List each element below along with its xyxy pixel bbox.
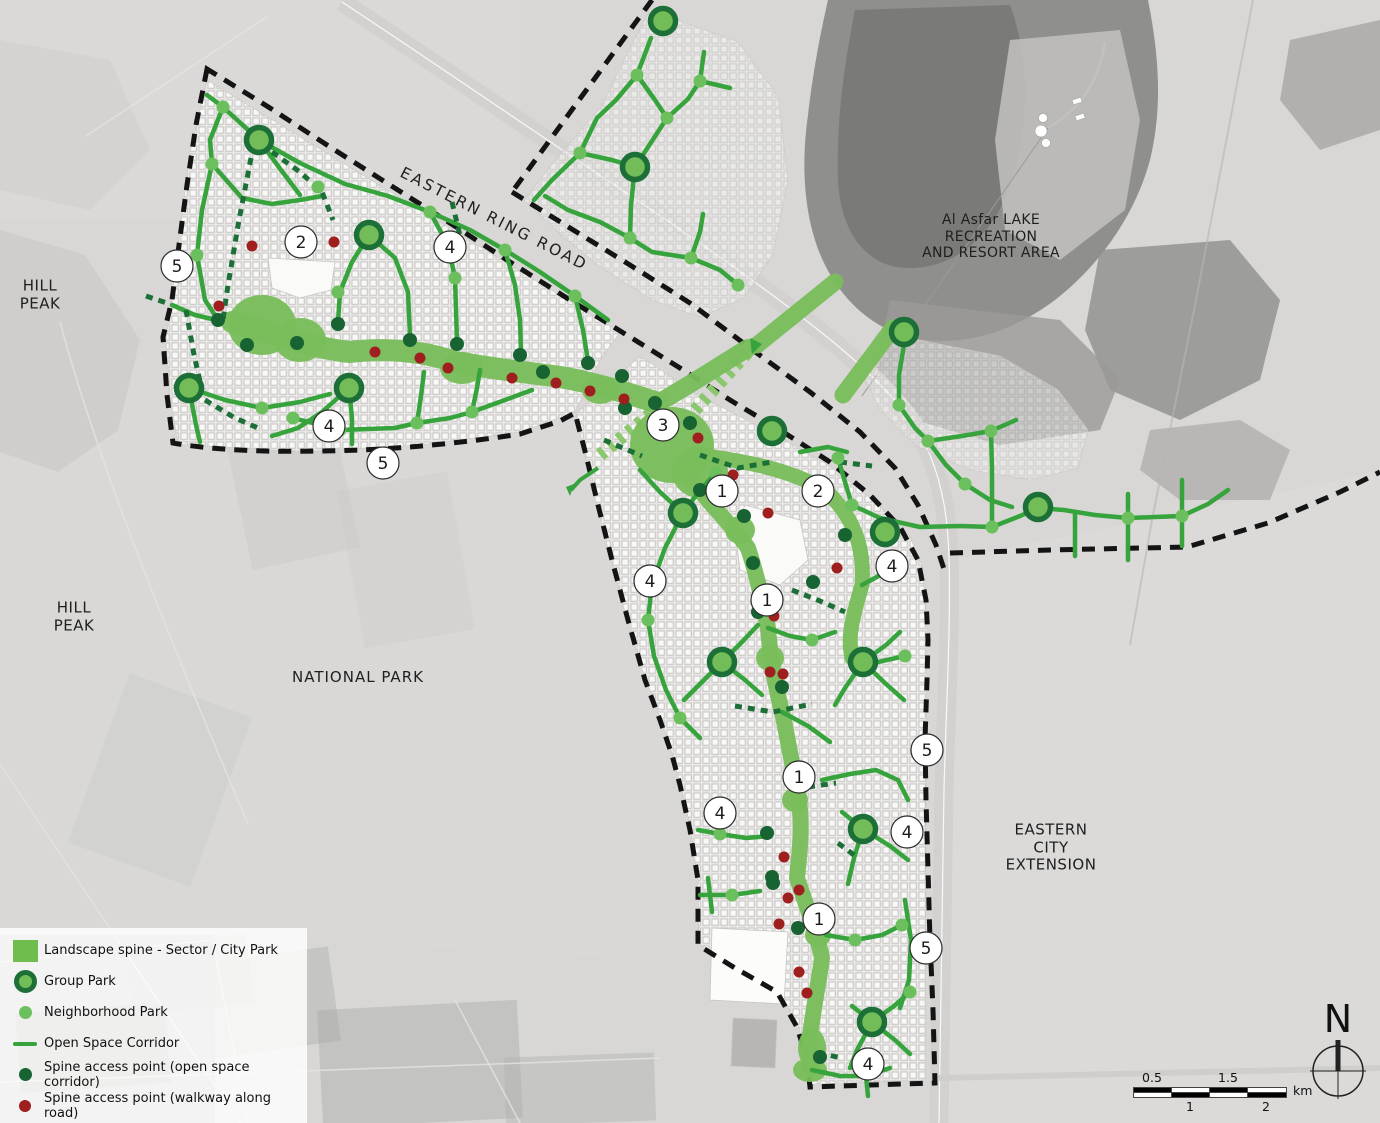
neighborhood-park-dot bbox=[424, 206, 437, 219]
spine-access-walkway-dot bbox=[443, 363, 454, 374]
sector-badge-label: 3 bbox=[658, 416, 669, 436]
neighborhood-park-dot bbox=[922, 435, 935, 448]
spine-access-open-dot bbox=[403, 333, 417, 347]
group-park-circle bbox=[873, 520, 898, 545]
legend-label: Spine access point (open space corridor) bbox=[44, 1060, 299, 1090]
spine-access-open-dot bbox=[290, 336, 304, 350]
label-hill-peak-north: HILL PEAK bbox=[20, 277, 61, 312]
sector-badge: 1 bbox=[783, 761, 815, 793]
spine-access-walkway-dot bbox=[415, 353, 426, 364]
sector-badge-label: 1 bbox=[814, 910, 825, 930]
spine-access-walkway-dot bbox=[778, 669, 789, 680]
neighborhood-park-dot bbox=[312, 181, 325, 194]
sector-badge: 4 bbox=[313, 410, 345, 442]
spine-access-walkway-dot bbox=[693, 433, 704, 444]
sector-badge-label: 4 bbox=[902, 823, 913, 843]
lake-shape bbox=[1280, 20, 1380, 150]
sector-badge-label: 1 bbox=[762, 591, 773, 611]
farm-field bbox=[317, 1000, 523, 1123]
neighborhood-park-dot bbox=[986, 521, 999, 534]
spine-access-walkway-dot bbox=[794, 967, 805, 978]
neighborhood-park-dot bbox=[896, 919, 909, 932]
resort-building-dot bbox=[1039, 114, 1048, 123]
legend-label: Group Park bbox=[44, 974, 116, 989]
spine-access-walkway-dot bbox=[370, 347, 381, 358]
neighborhood-park-dot bbox=[674, 712, 687, 725]
spine-access-walkway-icon bbox=[10, 1100, 40, 1112]
sector-badge: 2 bbox=[285, 226, 317, 258]
neighborhood-park-dot bbox=[849, 934, 862, 947]
open-space-corridor-icon bbox=[10, 1042, 40, 1046]
legend-item-spine-access-open: Spine access point (open space corridor) bbox=[10, 1059, 299, 1090]
neighborhood-park-dot bbox=[411, 417, 424, 430]
spine-access-open-icon bbox=[10, 1068, 40, 1081]
legend-label: Neighborhood Park bbox=[44, 1005, 168, 1020]
spine-access-walkway-dot bbox=[765, 667, 776, 678]
neighborhood-park-dot bbox=[642, 614, 655, 627]
group-park-circle bbox=[892, 320, 917, 345]
resort-building-dot bbox=[1035, 125, 1047, 137]
legend-item-open-space-corridor: Open Space Corridor bbox=[10, 1028, 299, 1059]
sector-badge: 4 bbox=[891, 816, 923, 848]
group-park-circle bbox=[860, 1010, 885, 1035]
group-park-circle bbox=[337, 376, 362, 401]
sector-badge: 5 bbox=[161, 250, 193, 282]
sector-badge: 5 bbox=[911, 734, 943, 766]
sector-badge: 1 bbox=[803, 903, 835, 935]
neighborhood-park-dot bbox=[685, 252, 698, 265]
sector-badge: 5 bbox=[910, 932, 942, 964]
spine-access-open-dot bbox=[760, 826, 774, 840]
sector-badge: 1 bbox=[706, 475, 738, 507]
spine-access-open-dot bbox=[693, 483, 707, 497]
scale-bar: 0.5 1.5 km 1 2 bbox=[1131, 1070, 1316, 1116]
spine-access-open-dot bbox=[813, 1050, 827, 1064]
open-space-corridor bbox=[991, 431, 992, 527]
spine-access-open-dot bbox=[331, 317, 345, 331]
scale-tick-label: 1 bbox=[1186, 1099, 1194, 1114]
neighborhood-park-dot bbox=[893, 399, 906, 412]
spine-access-walkway-dot bbox=[774, 919, 785, 930]
sector-badge-label: 5 bbox=[922, 741, 933, 761]
spine-access-walkway-dot bbox=[214, 301, 225, 312]
neighborhood-park-dot bbox=[959, 478, 972, 491]
neighborhood-park-dot bbox=[1122, 512, 1135, 525]
spine-access-open-dot bbox=[450, 337, 464, 351]
sector-badge-label: 4 bbox=[863, 1055, 874, 1075]
spine-access-walkway-dot bbox=[779, 852, 790, 863]
site-plan-map: 524453124415144154 HILL PEAK HILL PEAK N… bbox=[0, 0, 1380, 1123]
spine-access-walkway-dot bbox=[507, 373, 518, 384]
sector-badge-label: 4 bbox=[324, 417, 335, 437]
spine-access-open-dot bbox=[513, 348, 527, 362]
sector-badge-label: 2 bbox=[813, 482, 824, 502]
spine-access-open-dot bbox=[211, 313, 225, 327]
spine-access-open-dot bbox=[615, 369, 629, 383]
neighborhood-park-dot bbox=[256, 402, 269, 415]
label-al-asfar-lake: Al Asfar LAKE RECREATION AND RESORT AREA bbox=[922, 212, 1060, 262]
compass-icon bbox=[1308, 1038, 1368, 1100]
neighborhood-park-dot bbox=[899, 650, 912, 663]
sector-badge: 4 bbox=[876, 550, 908, 582]
group-park-circle bbox=[623, 155, 648, 180]
spine-access-open-dot bbox=[746, 556, 760, 570]
north-letter: N bbox=[1303, 1000, 1373, 1038]
sector-badge-label: 2 bbox=[296, 233, 307, 253]
lake-shape bbox=[1140, 420, 1290, 500]
open-space-corridor-dashed bbox=[146, 296, 170, 304]
spine-access-open-dot bbox=[536, 365, 550, 379]
neighborhood-park-dot bbox=[449, 272, 462, 285]
spine-access-walkway-dot bbox=[802, 988, 813, 999]
spine-access-walkway-dot bbox=[619, 394, 630, 405]
sector-badge: 5 bbox=[367, 447, 399, 479]
scale-tick-label: 2 bbox=[1262, 1099, 1270, 1114]
sector-badge-label: 5 bbox=[921, 939, 932, 959]
label-eastern-city-extension: EASTERN CITY EXTENSION bbox=[1006, 821, 1097, 874]
legend-panel: Landscape spine - Sector / City Park Gro… bbox=[0, 928, 307, 1123]
urban-fabric bbox=[524, 10, 788, 317]
neighborhood-park-dot bbox=[574, 147, 587, 160]
scale-tick-label: 0.5 bbox=[1142, 1070, 1162, 1085]
neighborhood-park-dot bbox=[832, 452, 845, 465]
legend-item-landscape-spine: Landscape spine - Sector / City Park bbox=[10, 935, 299, 966]
development-parcel bbox=[731, 1018, 777, 1068]
neighborhood-park-icon bbox=[10, 1006, 40, 1019]
neighborhood-park-dot bbox=[985, 425, 998, 438]
legend-label: Landscape spine - Sector / City Park bbox=[44, 943, 278, 958]
legend-label: Spine access point (walkway along road) bbox=[44, 1091, 299, 1121]
sector-badge-label: 4 bbox=[645, 572, 656, 592]
landscape-spine-swatch-icon bbox=[10, 940, 40, 962]
development-parcel bbox=[710, 928, 788, 1004]
open-space-corridor-dashed bbox=[840, 462, 872, 466]
group-park-circle bbox=[851, 817, 876, 842]
resort-building-dot bbox=[1042, 139, 1051, 148]
sector-badge: 3 bbox=[647, 409, 679, 441]
neighborhood-park-dot bbox=[332, 286, 345, 299]
sector-badge-label: 5 bbox=[378, 454, 389, 474]
spine-access-open-dot bbox=[775, 680, 789, 694]
spine-access-walkway-dot bbox=[329, 237, 340, 248]
label-hill-peak-south: HILL PEAK bbox=[54, 599, 95, 634]
neighborhood-park-dot bbox=[846, 499, 859, 512]
spine-access-open-dot bbox=[648, 396, 662, 410]
spine-access-walkway-dot bbox=[832, 563, 843, 574]
neighborhood-park-dot bbox=[904, 986, 917, 999]
spine-access-walkway-dot bbox=[551, 378, 562, 389]
neighborhood-park-dot bbox=[624, 232, 637, 245]
sector-badge: 4 bbox=[634, 565, 666, 597]
neighborhood-park-dot bbox=[206, 158, 219, 171]
spine-access-open-dot bbox=[240, 338, 254, 352]
north-arrow: N bbox=[1303, 1000, 1373, 1112]
group-park-circle bbox=[671, 501, 696, 526]
neighborhood-park-dot bbox=[661, 112, 674, 125]
group-park-circle bbox=[1026, 495, 1051, 520]
legend-item-spine-access-walkway: Spine access point (walkway along road) bbox=[10, 1090, 299, 1121]
group-park-circle bbox=[651, 9, 676, 34]
sector-badge: 4 bbox=[852, 1048, 884, 1080]
spine-access-open-dot bbox=[806, 575, 820, 589]
neighborhood-park-dot bbox=[499, 244, 512, 257]
group-park-circle bbox=[710, 650, 735, 675]
group-park-circle bbox=[177, 376, 202, 401]
neighborhood-park-dot bbox=[694, 75, 707, 88]
spine-access-open-dot bbox=[683, 416, 697, 430]
neighborhood-park-dot bbox=[569, 290, 582, 303]
sector-badge-label: 4 bbox=[715, 804, 726, 824]
label-national-park: NATIONAL PARK bbox=[292, 669, 424, 687]
spine-access-walkway-dot bbox=[247, 241, 258, 252]
lake-layer bbox=[804, 0, 1380, 500]
spine-access-open-dot bbox=[791, 921, 805, 935]
sector-badge-label: 4 bbox=[445, 238, 456, 258]
spine-access-open-dot bbox=[581, 356, 595, 370]
neighborhood-park-dot bbox=[806, 634, 819, 647]
spine-access-walkway-dot bbox=[763, 508, 774, 519]
spine-access-walkway-dot bbox=[783, 893, 794, 904]
scale-tick-label: 1.5 bbox=[1218, 1070, 1238, 1085]
neighborhood-park-dot bbox=[631, 69, 644, 82]
neighborhood-park-dot bbox=[466, 406, 479, 419]
legend-item-group-park: Group Park bbox=[10, 966, 299, 997]
spine-access-walkway-dot bbox=[794, 885, 805, 896]
sector-badge: 4 bbox=[704, 797, 736, 829]
neighborhood-park-dot bbox=[287, 412, 300, 425]
group-park-circle bbox=[760, 419, 785, 444]
sector-badge-label: 4 bbox=[887, 557, 898, 577]
neighborhood-park-dot bbox=[726, 889, 739, 902]
legend-label: Open Space Corridor bbox=[44, 1036, 179, 1051]
neighborhood-park-dot bbox=[191, 249, 204, 262]
group-park-circle bbox=[357, 223, 382, 248]
sector-badge-label: 5 bbox=[172, 257, 183, 277]
spine-access-open-dot bbox=[766, 876, 780, 890]
sector-badge-label: 1 bbox=[717, 482, 728, 502]
neighborhood-park-dot bbox=[732, 279, 745, 292]
neighborhood-park-dot bbox=[217, 101, 230, 114]
group-park-icon bbox=[10, 970, 40, 993]
sector-badge: 4 bbox=[434, 231, 466, 263]
spine-access-walkway-dot bbox=[585, 386, 596, 397]
spine-access-open-dot bbox=[838, 528, 852, 542]
sector-badge-label: 1 bbox=[794, 768, 805, 788]
scale-bar-segments bbox=[1133, 1087, 1287, 1098]
group-park-circle bbox=[851, 650, 876, 675]
sector-badge: 2 bbox=[802, 475, 834, 507]
neighborhood-park-dot bbox=[1176, 510, 1189, 523]
legend-item-neighborhood-park: Neighborhood Park bbox=[10, 997, 299, 1028]
group-park-circle bbox=[247, 128, 272, 153]
sector-badge: 1 bbox=[751, 584, 783, 616]
spine-access-open-dot bbox=[737, 509, 751, 523]
